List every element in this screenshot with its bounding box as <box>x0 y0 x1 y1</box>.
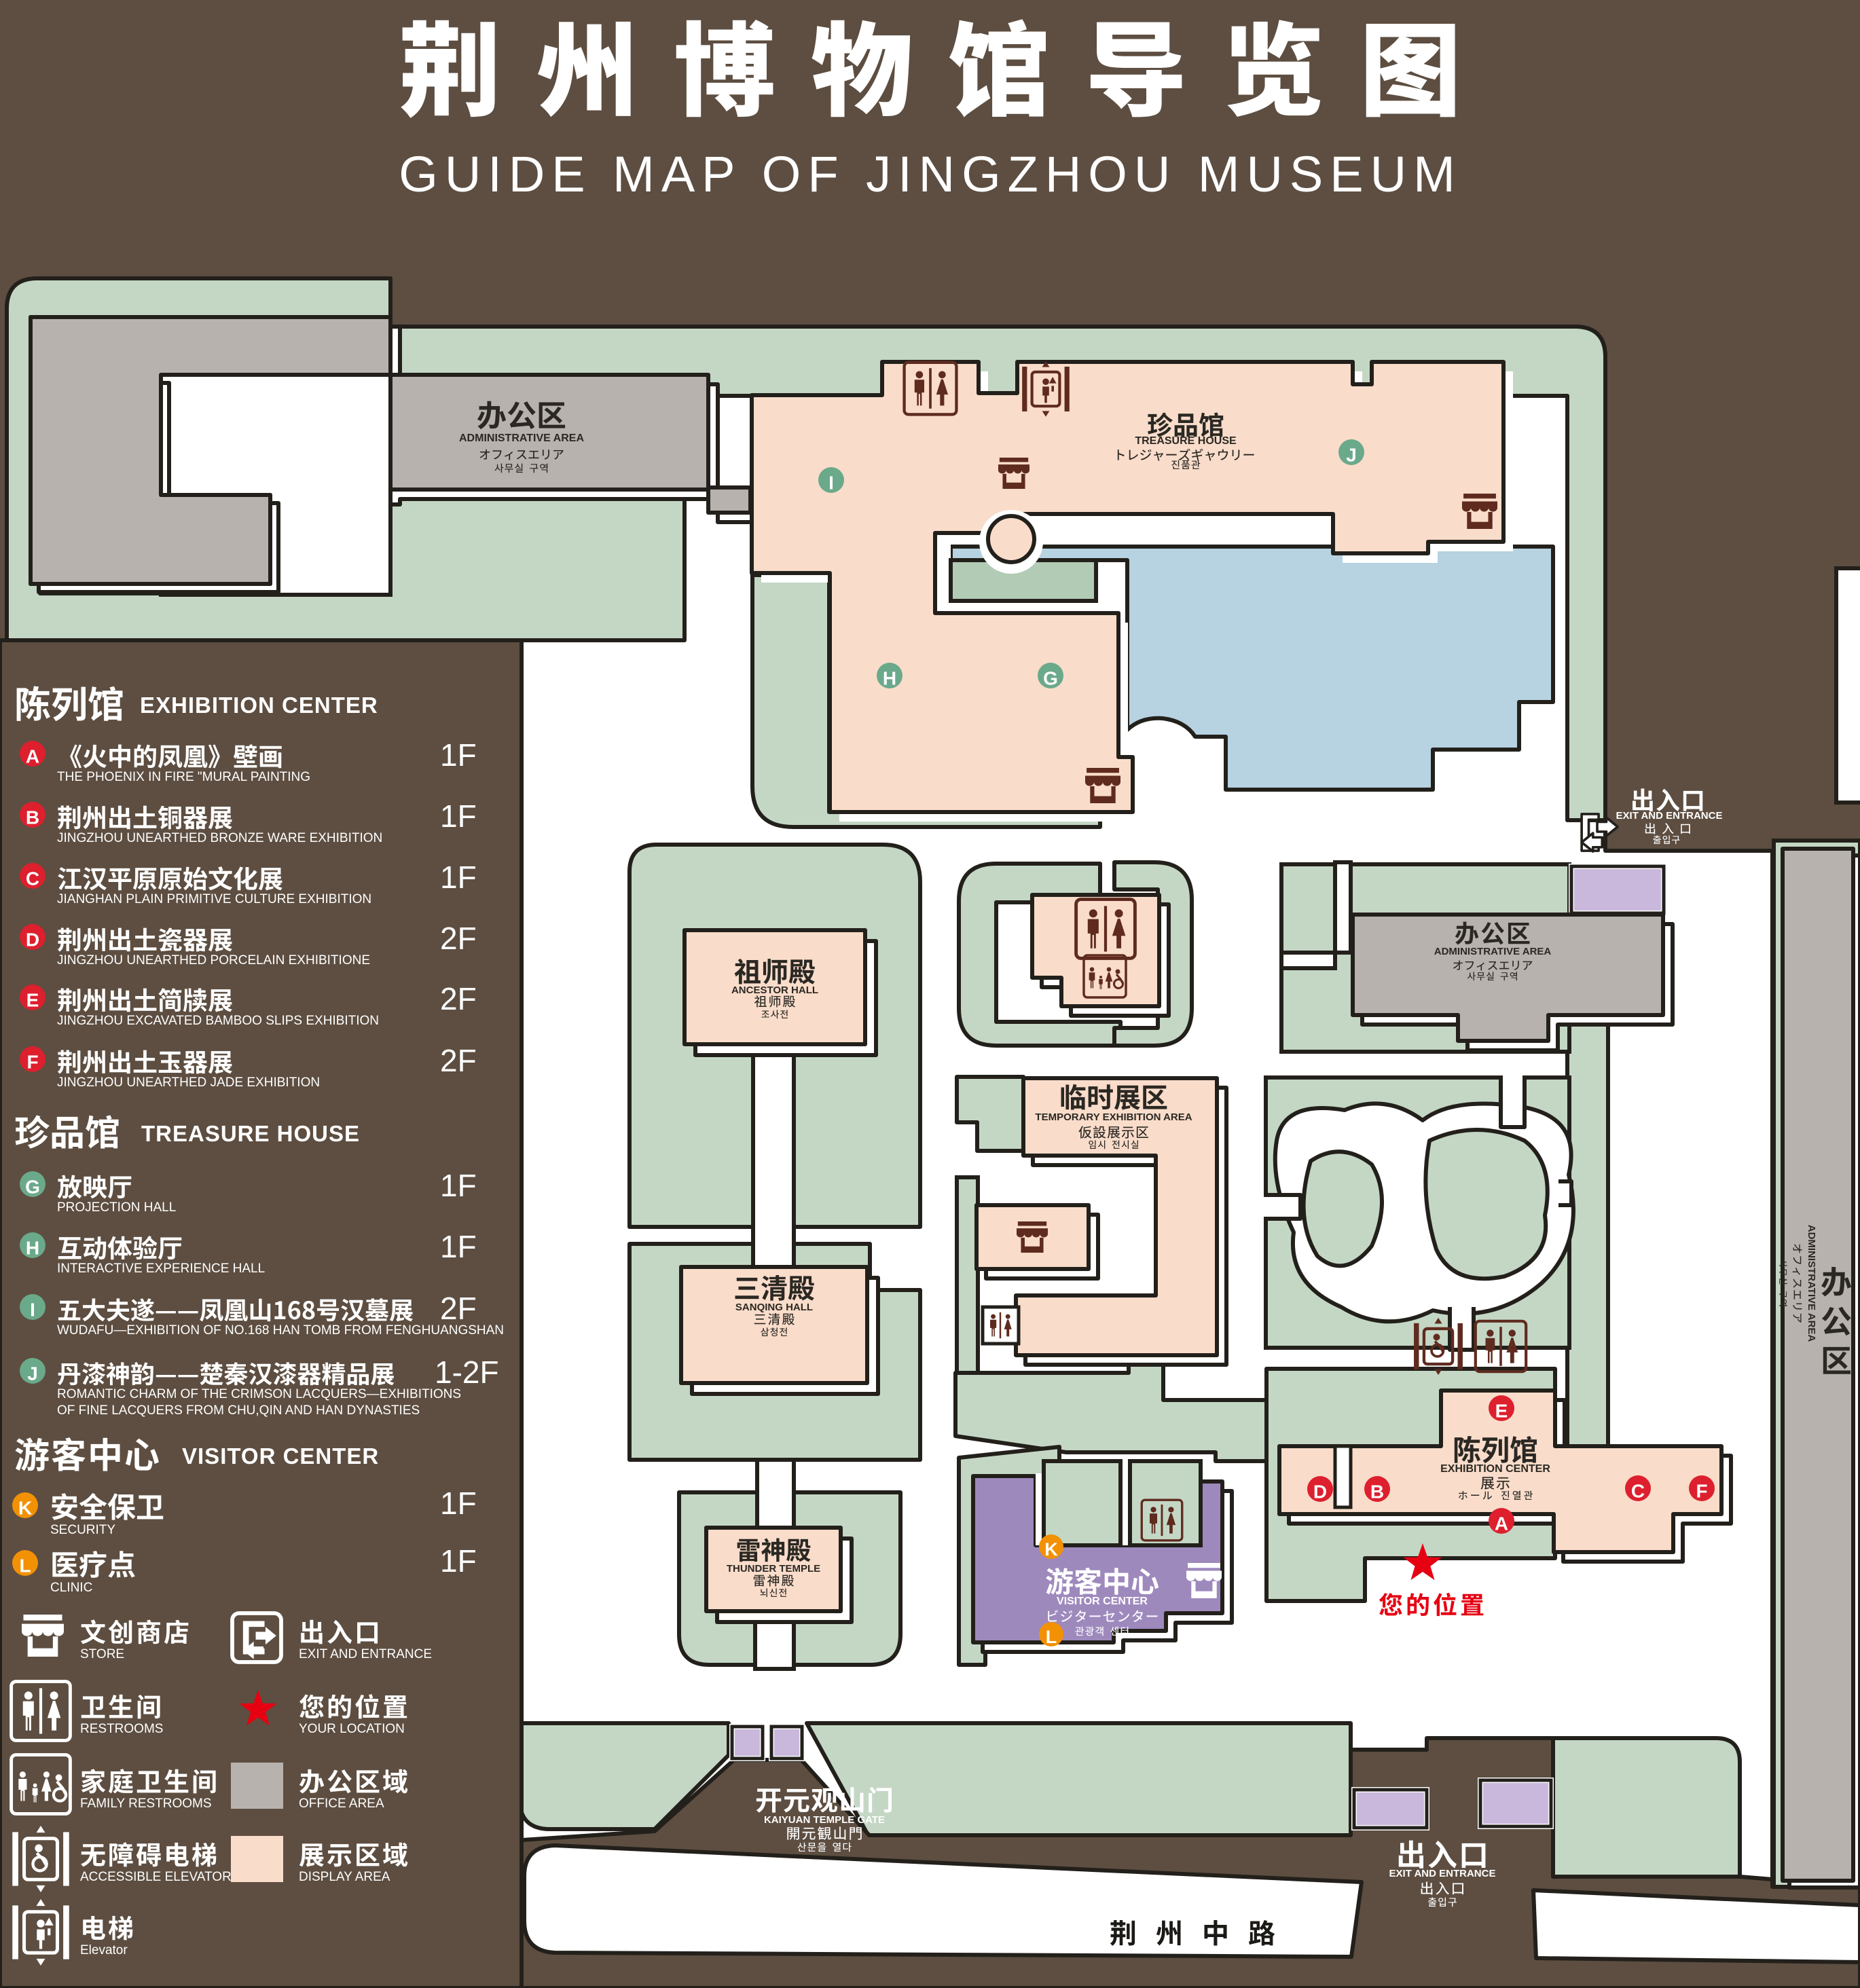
svg-text:1F: 1F <box>440 1486 477 1521</box>
svg-text:K: K <box>1044 1539 1058 1560</box>
svg-text:I: I <box>828 473 834 494</box>
svg-text:EXHIBITION CENTER: EXHIBITION CENTER <box>140 693 378 718</box>
svg-text:1F: 1F <box>440 737 477 773</box>
svg-text:FAMILY RESTROOMS: FAMILY RESTROOMS <box>80 1797 212 1811</box>
svg-text:ADMINISTRATIVE AREA: ADMINISTRATIVE AREA <box>1806 1225 1817 1342</box>
svg-text:G: G <box>1043 668 1058 689</box>
svg-text:1F: 1F <box>440 1168 477 1203</box>
svg-text:OFFICE AREA: OFFICE AREA <box>299 1797 384 1811</box>
svg-text:D: D <box>1313 1481 1327 1503</box>
svg-text:2F: 2F <box>440 921 477 956</box>
svg-text:VISITOR CENTER: VISITOR CENTER <box>1057 1596 1148 1607</box>
svg-text:1F: 1F <box>440 860 477 895</box>
svg-text:OF FINE LACQUERS FROM CHU,QIN: OF FINE LACQUERS FROM CHU,QIN AND HAN DY… <box>57 1403 420 1418</box>
svg-text:JIANGHAN PLAIN PRIMITIVE CULTU: JIANGHAN PLAIN PRIMITIVE CULTURE EXHIBIT… <box>57 892 371 906</box>
svg-text:ACCESSIBLE ELEVATOR: ACCESSIBLE ELEVATOR <box>80 1870 232 1884</box>
svg-text:J: J <box>1346 445 1357 466</box>
svg-text:TREASURE HOUSE: TREASURE HOUSE <box>1135 435 1237 447</box>
svg-text:CLINIC: CLINIC <box>50 1581 92 1595</box>
svg-text:B: B <box>26 807 39 828</box>
svg-text:TREASURE HOUSE: TREASURE HOUSE <box>141 1121 360 1146</box>
svg-text:I: I <box>30 1300 35 1321</box>
svg-text:K: K <box>18 1498 32 1519</box>
svg-text:H: H <box>26 1238 39 1259</box>
svg-text:2F: 2F <box>440 1043 477 1078</box>
svg-text:GUIDE MAP OF JINGZHOU MUSEUM: GUIDE MAP OF JINGZHOU MUSEUM <box>399 146 1461 202</box>
svg-text:H: H <box>883 668 896 689</box>
svg-text:2F: 2F <box>440 1291 477 1326</box>
svg-text:L: L <box>19 1556 31 1577</box>
svg-text:INTERACTIVE EXPERIENCE HALL: INTERACTIVE EXPERIENCE HALL <box>57 1262 265 1276</box>
svg-text:F: F <box>26 1052 38 1073</box>
svg-text:JINGZHOU UNEARTHED PORCELAIN E: JINGZHOU UNEARTHED PORCELAIN EXHIBITIONE <box>57 953 370 968</box>
svg-text:E: E <box>1495 1401 1508 1422</box>
svg-text:WUDAFU—EXHIBITION OF NO.168 HA: WUDAFU—EXHIBITION OF NO.168 HAN TOMB FRO… <box>57 1323 504 1338</box>
svg-text:ROMANTIC CHARM OF THE CRIMSON: ROMANTIC CHARM OF THE CRIMSON LACQUERS—E… <box>57 1387 461 1401</box>
svg-text:C: C <box>1631 1481 1645 1502</box>
svg-text:RESTROOMS: RESTROOMS <box>80 1722 163 1736</box>
svg-text:THUNDER TEMPLE: THUNDER TEMPLE <box>727 1563 820 1575</box>
svg-text:F: F <box>1696 1481 1707 1502</box>
svg-text:TEMPORARY EXHIBITION AREA: TEMPORARY EXHIBITION AREA <box>1035 1111 1192 1123</box>
svg-text:EXHIBITION CENTER: EXHIBITION CENTER <box>1440 1463 1550 1475</box>
svg-text:ADMINISTRATIVE AREA: ADMINISTRATIVE AREA <box>459 432 584 444</box>
svg-text:A: A <box>1495 1513 1508 1534</box>
svg-text:SANQING HALL: SANQING HALL <box>735 1302 813 1313</box>
svg-text:STORE: STORE <box>80 1647 124 1661</box>
svg-text:THE PHOENIX IN FIRE "MURAL PAI: THE PHOENIX IN FIRE "MURAL PAINTING <box>57 770 310 784</box>
svg-text:YOUR LOCATION: YOUR LOCATION <box>299 1722 405 1736</box>
svg-text:JINGZHOU EXCAVATED BAMBOO SLIP: JINGZHOU EXCAVATED BAMBOO SLIPS EXHIBITI… <box>57 1014 379 1028</box>
svg-text:J: J <box>27 1363 38 1384</box>
svg-text:JINGZHOU UNEARTHED BRONZE WARE: JINGZHOU UNEARTHED BRONZE WARE EXHIBITIO… <box>57 831 382 845</box>
svg-text:JINGZHOU UNEARTHED JADE EXHIBI: JINGZHOU UNEARTHED JADE EXHIBITION <box>57 1075 320 1090</box>
svg-text:EXIT AND ENTRANCE: EXIT AND ENTRANCE <box>1616 810 1723 822</box>
svg-text:1F: 1F <box>440 1543 477 1579</box>
svg-text:L: L <box>1046 1627 1057 1647</box>
svg-text:PROJECTION HALL: PROJECTION HALL <box>57 1200 176 1215</box>
svg-text:A: A <box>26 746 39 767</box>
svg-text:KAIYUAN TEMPLE GATE: KAIYUAN TEMPLE GATE <box>764 1814 885 1826</box>
svg-text:DISPLAY AREA: DISPLAY AREA <box>299 1870 390 1884</box>
svg-text:B: B <box>1370 1481 1384 1503</box>
svg-text:1F: 1F <box>440 798 477 834</box>
svg-text:1-2F: 1-2F <box>435 1355 499 1390</box>
svg-text:VISITOR CENTER: VISITOR CENTER <box>182 1443 379 1469</box>
svg-text:EXIT AND ENTRANCE: EXIT AND ENTRANCE <box>1389 1868 1496 1879</box>
svg-text:E: E <box>26 990 39 1011</box>
svg-text:ADMINISTRATIVE AREA: ADMINISTRATIVE AREA <box>1434 946 1552 957</box>
svg-text:D: D <box>26 929 39 951</box>
svg-text:G: G <box>25 1177 40 1198</box>
svg-text:C: C <box>26 868 39 889</box>
svg-text:EXIT AND ENTRANCE: EXIT AND ENTRANCE <box>299 1647 432 1661</box>
svg-text:SECURITY: SECURITY <box>50 1523 115 1537</box>
svg-text:2F: 2F <box>440 981 477 1016</box>
svg-text:1F: 1F <box>440 1229 477 1264</box>
svg-text:ANCESTOR HALL: ANCESTOR HALL <box>731 984 818 996</box>
svg-text:Elevator: Elevator <box>80 1943 128 1957</box>
